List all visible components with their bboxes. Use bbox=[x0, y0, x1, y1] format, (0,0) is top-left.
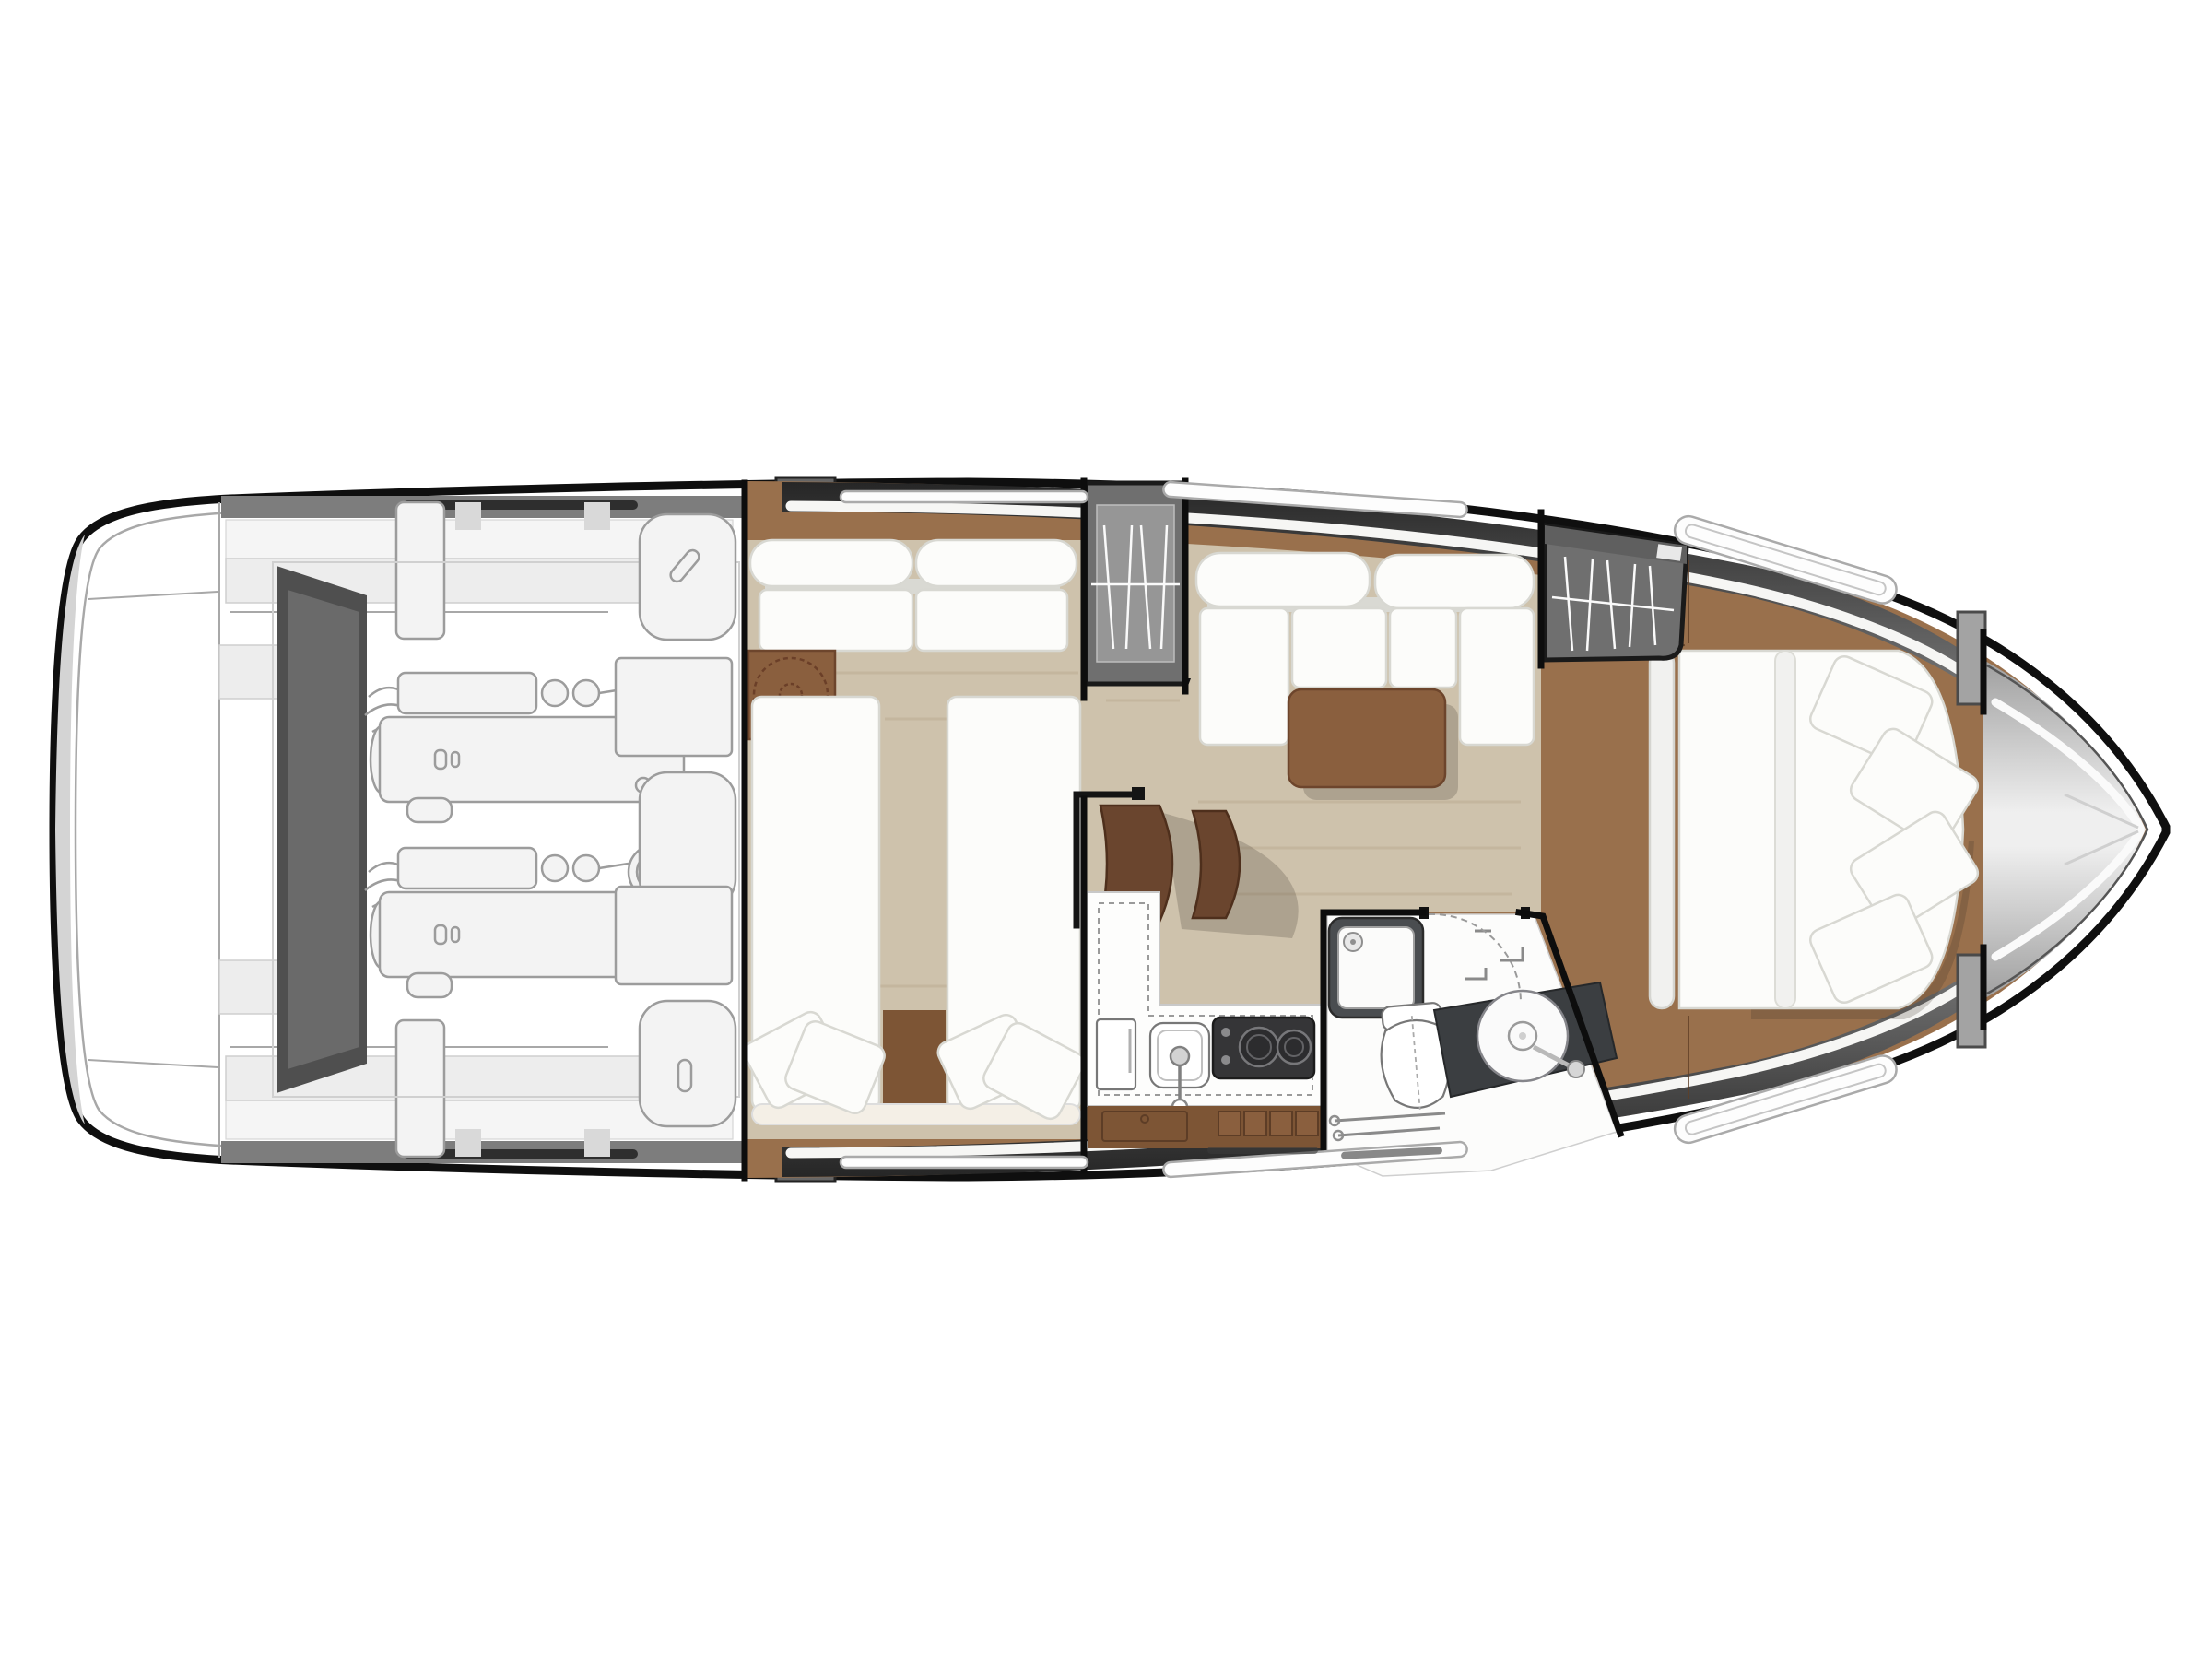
stove-knob-2 bbox=[1221, 1055, 1230, 1065]
shower-drain-center bbox=[1350, 939, 1356, 945]
roof-pillar-top bbox=[396, 502, 444, 639]
roof-bracket-top-2 bbox=[584, 502, 610, 530]
stove-burner-large bbox=[1240, 1028, 1278, 1066]
roof-pillar-bottom bbox=[396, 1020, 444, 1157]
roof-bracket-bottom-2 bbox=[584, 1129, 610, 1157]
window-slit-bottom-aft bbox=[841, 1157, 1088, 1168]
window-slit-top-aft bbox=[841, 491, 1088, 502]
wardrobe-midship bbox=[1086, 483, 1185, 684]
settee-backrest-right bbox=[1375, 555, 1534, 608]
handrail-end-post bbox=[1132, 787, 1145, 800]
tank-cylinder-1 bbox=[640, 514, 735, 640]
settee-chaise-right bbox=[1460, 608, 1534, 745]
vanity-drain-dot bbox=[1519, 1032, 1526, 1040]
foredeck bbox=[1958, 612, 2147, 1047]
master-headboard-bolster bbox=[1650, 651, 1674, 1008]
settee-seat-center-1 bbox=[1292, 608, 1386, 688]
vanity-faucet-knob bbox=[1568, 1061, 1584, 1077]
settee-chaise-left bbox=[1200, 608, 1288, 745]
guest-sofa-seat-left bbox=[759, 590, 912, 651]
guest-cabin bbox=[740, 540, 1088, 1139]
tank-cylinder-3 bbox=[640, 1001, 735, 1126]
wardrobe-master bbox=[1545, 525, 1687, 660]
stove-knob-1 bbox=[1221, 1028, 1230, 1037]
roof-bracket-top-1 bbox=[455, 502, 481, 530]
salon-table bbox=[1288, 689, 1445, 787]
equipment-box-2 bbox=[616, 887, 732, 984]
boat-floor-plan bbox=[0, 0, 2212, 1659]
deck-track-slit-1 bbox=[1207, 1147, 1318, 1154]
screenshot-canvas bbox=[0, 0, 2212, 1659]
guest-sofa-backrest-right bbox=[916, 540, 1077, 586]
stove-burner-small bbox=[1277, 1030, 1311, 1064]
settee-backrest-left bbox=[1196, 553, 1370, 606]
guest-sofa-backrest-left bbox=[750, 540, 912, 586]
master-mattress-seam bbox=[1775, 651, 1795, 1008]
sink-faucet-base bbox=[1171, 1047, 1189, 1065]
settee-seat-center-2 bbox=[1390, 608, 1456, 688]
roof-bracket-bottom-1 bbox=[455, 1129, 481, 1157]
guest-between-bed-cabinet bbox=[883, 1010, 946, 1110]
engine-room-hatch-inner bbox=[288, 590, 359, 1069]
guest-sofa-seat-right bbox=[916, 590, 1067, 651]
equipment-box-1 bbox=[616, 658, 732, 756]
